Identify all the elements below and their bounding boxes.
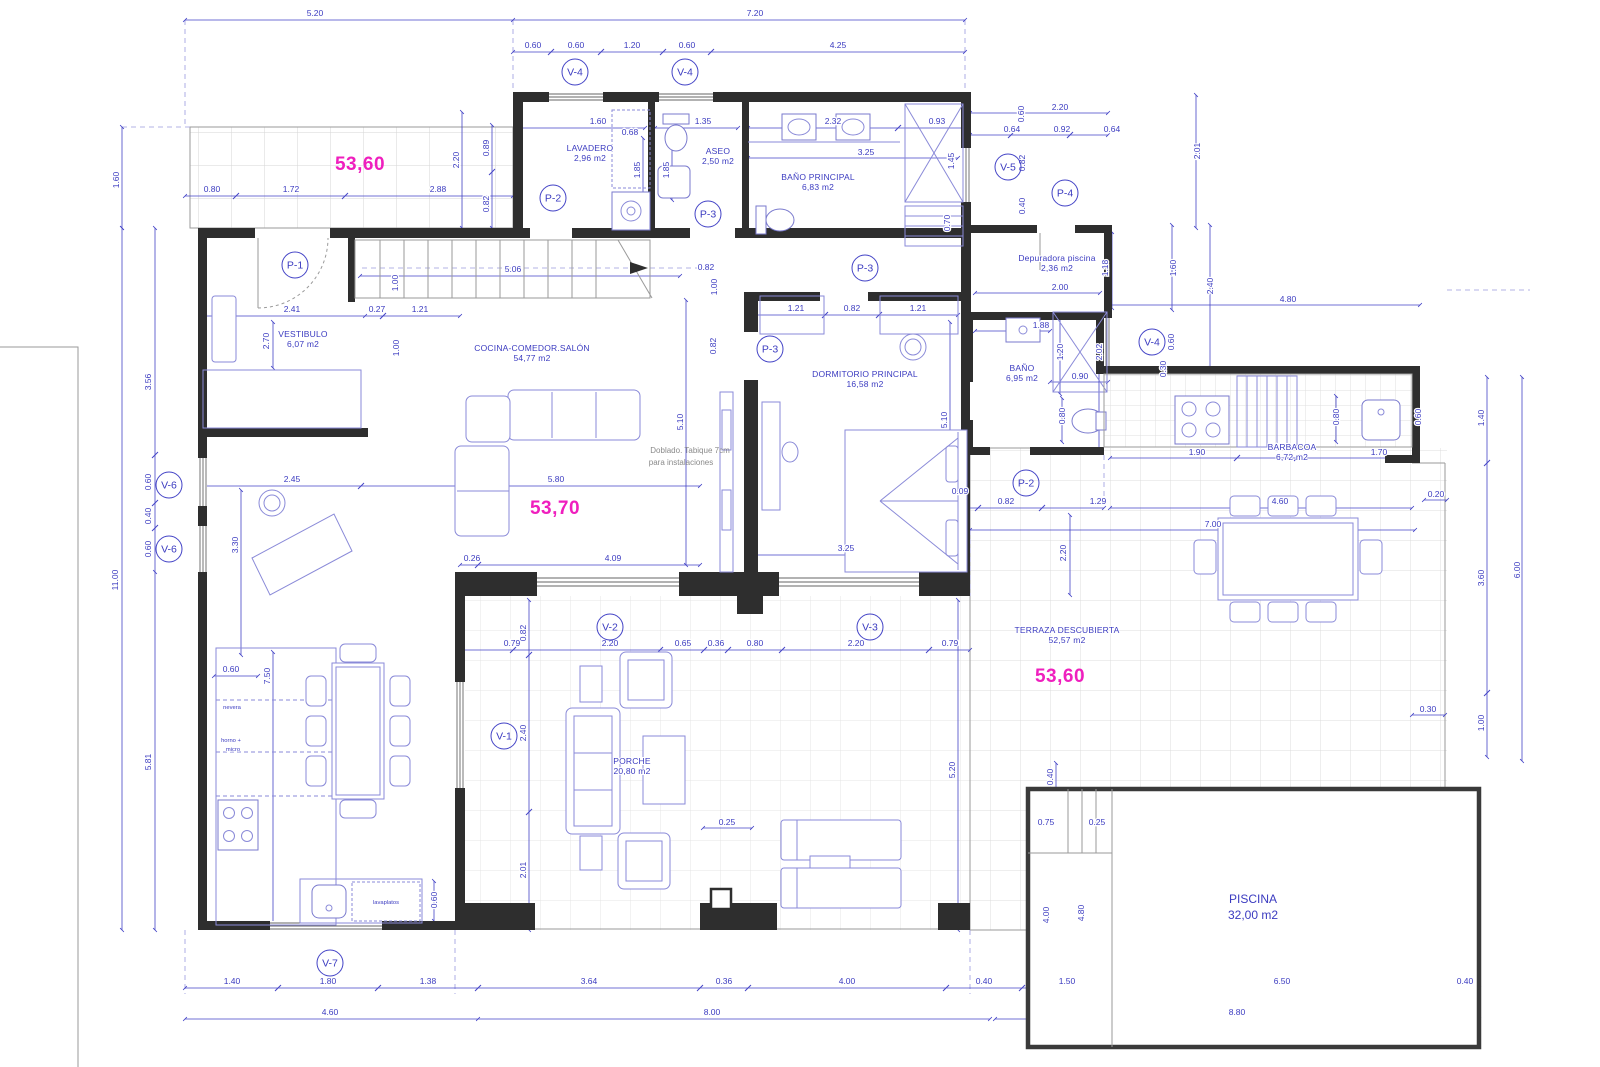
dim-label: 0.30 xyxy=(1158,360,1168,377)
dim-label: 0.60 xyxy=(568,40,585,50)
drawing-sheet: 5.20 7.20 0.60 0.60 1.20 0.60 4.25 1.60 … xyxy=(0,0,1600,1067)
tag-v7: V-7 xyxy=(317,950,343,976)
dim-label: 4.00 xyxy=(839,976,856,986)
svg-text:V-5: V-5 xyxy=(1000,162,1016,174)
dim-label: 0.60 xyxy=(1166,333,1176,350)
aseo-fixtures xyxy=(658,114,690,198)
tv-console xyxy=(720,392,733,572)
tag-p3-aseo: P-3 xyxy=(695,201,721,227)
surface-mark: 53,60 xyxy=(335,154,385,175)
svg-text:V-6: V-6 xyxy=(161,544,177,556)
dim-label: 5.10 xyxy=(675,413,685,430)
dim-label: 1.60 xyxy=(1168,259,1178,276)
svg-text:V-1: V-1 xyxy=(496,731,512,743)
tag-p3-hall: P-3 xyxy=(757,336,783,362)
dim-label: 0.79 xyxy=(942,638,959,648)
dim-label: 0.36 xyxy=(708,638,725,648)
room-area: 2,50 m2 xyxy=(702,156,734,166)
dim-label: 3.25 xyxy=(838,543,855,553)
surface-mark: 53,70 xyxy=(530,498,580,519)
dim-label: 5.80 xyxy=(548,474,565,484)
dim-label: 2.40 xyxy=(518,724,528,741)
svg-text:P-3: P-3 xyxy=(762,344,779,356)
dim-label: 1.60 xyxy=(590,116,607,126)
dim-label: 1.21 xyxy=(788,303,805,313)
vestibule-closet xyxy=(203,370,361,428)
dim-label: 1.20 xyxy=(1055,343,1065,360)
room-area: 6,95 m2 xyxy=(1006,373,1038,383)
dim-label: 2.88 xyxy=(430,184,447,194)
dim-label: 0.90 xyxy=(1072,371,1089,381)
dim-label: 1.29 xyxy=(1090,496,1107,506)
dim-label: 1.60 xyxy=(111,171,121,188)
dim-label: 6.00 xyxy=(1512,561,1522,578)
dim-label: 1.72 xyxy=(283,184,300,194)
dim-label: 7.00 xyxy=(1205,519,1222,529)
dim-label: 0.36 xyxy=(716,976,733,986)
dim-label: 8.00 xyxy=(704,1007,721,1017)
dim-label: 1.85 xyxy=(661,161,671,178)
dim-label: 2.01 xyxy=(518,861,528,878)
dim-label: 1.18 xyxy=(1100,259,1110,276)
dim-label: 0.89 xyxy=(481,139,491,156)
tag-p1: P-1 xyxy=(282,252,308,278)
tag-p3-bedroom-top: P-3 xyxy=(852,255,878,281)
room-name: BARBACOA xyxy=(1268,442,1317,452)
dim-label: 2.41 xyxy=(284,304,301,314)
dim-label: 0.82 xyxy=(708,337,718,354)
room-name: TERRAZA DESCUBIERTA xyxy=(1014,625,1119,635)
dim-label: 0.82 xyxy=(1017,154,1027,171)
dim-label: 7.50 xyxy=(262,667,272,684)
tag-v4-right: V-4 xyxy=(1139,329,1165,355)
dim-label: 0.82 xyxy=(481,195,491,212)
room-area: 20,80 m2 xyxy=(613,766,650,776)
sheet-frame xyxy=(0,347,78,1067)
svg-text:V-2: V-2 xyxy=(602,622,618,634)
dim-label: 0.80 xyxy=(1057,407,1067,424)
dim-label: 0.82 xyxy=(844,303,861,313)
dim-label: 2.20 xyxy=(848,638,865,648)
dim-label: 3.30 xyxy=(230,536,240,553)
room-area: 6,07 m2 xyxy=(287,339,319,349)
dim-label: 1.50 xyxy=(1059,976,1076,986)
dim-label: 0.60 xyxy=(223,664,240,674)
room-area: 52,57 m2 xyxy=(1048,635,1085,645)
dim-label: 2.40 xyxy=(1205,277,1215,294)
svg-text:V-4: V-4 xyxy=(567,67,583,79)
svg-text:V-3: V-3 xyxy=(862,622,878,634)
porch-post xyxy=(711,889,731,909)
window-v4-b xyxy=(659,92,713,102)
room-name: DORMITORIO PRINCIPAL xyxy=(812,369,918,379)
dim-label: 0.68 xyxy=(622,127,639,137)
dim-label: 1.00 xyxy=(390,274,400,291)
notes: Doblado. Tabique 7cm para instalaciones xyxy=(649,446,730,467)
dim-label: 0.25 xyxy=(1089,817,1106,827)
dim-label: 0.80 xyxy=(747,638,764,648)
dim-label: 0.70 xyxy=(942,214,952,231)
dim-label: 0.25 xyxy=(719,817,736,827)
dim-label: 0.60 xyxy=(679,40,696,50)
window-v6-b xyxy=(198,526,207,572)
tag-v6-b: V-6 xyxy=(156,536,182,562)
svg-text:P-2: P-2 xyxy=(1018,478,1035,490)
dim-label: 0.80 xyxy=(1331,408,1341,425)
dim-label: 1.21 xyxy=(412,304,429,314)
dim-label: 0.60 xyxy=(143,473,153,490)
room-name: ASEO xyxy=(706,146,731,156)
dim-label: 4.00 xyxy=(1041,906,1051,923)
tag-p4: P-4 xyxy=(1052,180,1078,206)
dim-label: 1.21 xyxy=(910,303,927,313)
dim-label: 2.02 xyxy=(1094,343,1104,360)
room-name: PISCINA xyxy=(1229,892,1277,906)
dim-label: 0.75 xyxy=(1038,817,1055,827)
dim-label: 1.00 xyxy=(709,278,719,295)
dim-label: 0.40 xyxy=(1017,197,1027,214)
floor-plan-canvas: 5.20 7.20 0.60 0.60 1.20 0.60 4.25 1.60 … xyxy=(0,0,1600,1067)
dim-label: 11.00 xyxy=(110,569,120,590)
dim-label: 4.80 xyxy=(1076,904,1086,921)
room-area: 2,36 m2 xyxy=(1041,263,1073,273)
dim-label: 2.20 xyxy=(1058,544,1068,561)
dim-label: 5.81 xyxy=(143,753,153,770)
window-v4-a xyxy=(549,92,603,102)
dim-label: 1.88 xyxy=(1033,320,1050,330)
dim-label: 1.38 xyxy=(420,976,437,986)
note-line: Doblado. Tabique 7cm xyxy=(650,446,730,455)
dim-label: 0.64 xyxy=(1004,124,1021,134)
dim-label: 2.00 xyxy=(1052,282,1069,292)
stair-direction-arrow xyxy=(630,262,648,274)
window-v3 xyxy=(779,572,919,596)
tag-v4-a: V-4 xyxy=(562,59,588,85)
surface-mark: 53,60 xyxy=(1035,666,1085,687)
dim-label: 0.27 xyxy=(369,304,386,314)
svg-text:V-4: V-4 xyxy=(1144,337,1160,349)
dim-label: 4.60 xyxy=(1272,496,1289,506)
dim-label: 1.45 xyxy=(946,152,956,169)
dim-label: 0.09 xyxy=(952,486,969,496)
dim-label: 0.93 xyxy=(929,116,946,126)
dim-label: 0.60 xyxy=(525,40,542,50)
dim-label: 1.70 xyxy=(1371,447,1388,457)
dim-label: 7.20 xyxy=(747,8,764,18)
dim-label: 0.60 xyxy=(1413,408,1423,425)
nw-terrace-tiles xyxy=(190,127,513,228)
dim-label: 5.06 xyxy=(505,264,522,274)
dim-label: 0.40 xyxy=(143,507,153,524)
dim-label: 1.80 xyxy=(320,976,337,986)
dim-label: 5.20 xyxy=(947,761,957,778)
dim-label: 0.82 xyxy=(518,624,528,641)
dim-label: 0.40 xyxy=(976,976,993,986)
room-area: 2,96 m2 xyxy=(574,153,606,163)
room-area: 6,72 m2 xyxy=(1276,452,1308,462)
room-area: 16,58 m2 xyxy=(846,379,883,389)
room-name: PORCHE xyxy=(613,756,651,766)
svg-text:P-3: P-3 xyxy=(857,263,874,275)
dim-label: 6.50 xyxy=(1274,976,1291,986)
room-name: VESTIBULO xyxy=(278,329,328,339)
dim-label: 5.20 xyxy=(307,8,324,18)
dim-label: 0.60 xyxy=(1016,105,1026,122)
dim-label: 4.80 xyxy=(1280,294,1297,304)
dim-label: 1.85 xyxy=(632,161,642,178)
dim-label: 0.40 xyxy=(1457,976,1474,986)
dim-label: 0.26 xyxy=(464,553,481,563)
svg-text:P-3: P-3 xyxy=(700,209,717,221)
dim-label: 2.45 xyxy=(284,474,301,484)
dim-label: 2.01 xyxy=(1192,142,1202,159)
room-area: 6,83 m2 xyxy=(802,182,834,192)
vestibule-bench xyxy=(212,296,236,362)
tag-p2-laundry: P-2 xyxy=(540,185,566,211)
dim-label: 0.20 xyxy=(1428,489,1445,499)
svg-text:V-7: V-7 xyxy=(322,958,338,970)
appliance-label: nevera xyxy=(223,705,242,711)
dim-label: 8.80 xyxy=(1229,1007,1246,1017)
entrance-door-leaf xyxy=(258,238,328,308)
dim-label: 0.80 xyxy=(204,184,221,194)
svg-text:P-2: P-2 xyxy=(545,193,562,205)
svg-text:V-4: V-4 xyxy=(677,67,693,79)
dim-label: 0.65 xyxy=(675,638,692,648)
note-line: para instalaciones xyxy=(649,458,713,467)
dim-label: 0.40 xyxy=(1045,768,1055,785)
tag-v4-b: V-4 xyxy=(672,59,698,85)
dim-label: 1.40 xyxy=(224,976,241,986)
dim-label: 3.60 xyxy=(1476,569,1486,586)
svg-text:P-1: P-1 xyxy=(287,260,304,272)
room-name: BAÑO PRINCIPAL xyxy=(781,172,855,182)
svg-text:V-6: V-6 xyxy=(161,480,177,492)
dim-label: 0.82 xyxy=(998,496,1015,506)
appliance-label: micro xyxy=(226,747,240,753)
svg-text:P-4: P-4 xyxy=(1057,188,1074,200)
dim-label: 0.92 xyxy=(1054,124,1071,134)
dim-label: 4.09 xyxy=(605,553,622,563)
dim-label: 1.90 xyxy=(1189,447,1206,457)
dim-label: 0.30 xyxy=(1420,704,1437,714)
dim-label: 1.00 xyxy=(1476,714,1486,731)
dim-label: 3.56 xyxy=(143,373,153,390)
dim-label: 1.00 xyxy=(391,339,401,356)
window-v2 xyxy=(537,572,679,596)
room-area: 32,00 m2 xyxy=(1228,908,1278,922)
dim-label: 2.20 xyxy=(451,151,461,168)
dim-label: 1.35 xyxy=(695,116,712,126)
dim-label: 5.10 xyxy=(939,411,949,428)
piano-desk xyxy=(252,490,352,595)
room-name: LAVADERO xyxy=(567,143,614,153)
dim-label: 2.32 xyxy=(825,116,842,126)
dim-label: 0.60 xyxy=(429,891,439,908)
window-v1 xyxy=(455,682,465,788)
room-name: BAÑO xyxy=(1010,363,1035,373)
appliance-label: horno + xyxy=(221,738,241,744)
tag-v6-a: V-6 xyxy=(156,472,182,498)
dim-label: 2.20 xyxy=(1052,102,1069,112)
room-area: 54,77 m2 xyxy=(513,353,550,363)
dim-label: 4.60 xyxy=(322,1007,339,1017)
dim-label: 0.82 xyxy=(698,262,715,272)
dim-label: 2.70 xyxy=(261,332,271,349)
dim-label: 3.25 xyxy=(858,147,875,157)
room-name: Depuradora piscina xyxy=(1018,253,1095,263)
dim-label: 0.64 xyxy=(1104,124,1121,134)
window-v4-right xyxy=(1104,318,1112,366)
dim-label: 4.25 xyxy=(830,40,847,50)
dim-label: 3.64 xyxy=(581,976,598,986)
dining-table-set xyxy=(306,644,410,818)
window-v6-a xyxy=(198,458,207,506)
dim-label: 1.20 xyxy=(624,40,641,50)
dim-label: 1.40 xyxy=(1476,409,1486,426)
dim-label: 0.60 xyxy=(143,540,153,557)
appliance-label: lavaplatos xyxy=(373,900,399,906)
room-name: COCINA-COMEDOR.SALÓN xyxy=(474,343,589,353)
